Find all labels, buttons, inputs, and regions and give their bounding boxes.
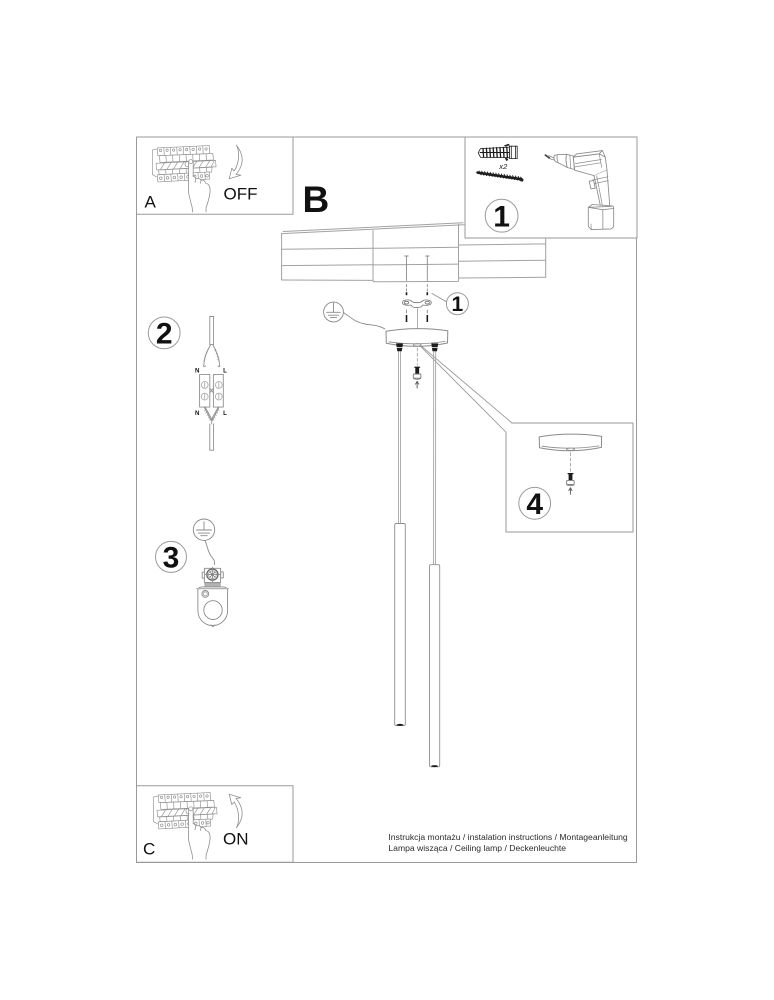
svg-text:B: B: [303, 179, 330, 220]
svg-text:Instrukcja montażu / instalati: Instrukcja montażu / instalation instruc…: [388, 832, 628, 842]
svg-text:L: L: [223, 368, 227, 375]
svg-text:C: C: [143, 839, 155, 858]
svg-text:N: N: [195, 368, 200, 375]
svg-text:3: 3: [163, 542, 180, 575]
svg-text:L: L: [223, 410, 227, 417]
svg-text:N: N: [195, 410, 200, 417]
svg-text:1: 1: [493, 201, 510, 234]
svg-text:1: 1: [452, 293, 464, 316]
svg-text:OFF: OFF: [224, 184, 258, 203]
svg-text:A: A: [145, 193, 157, 212]
svg-text:Lampa wisząca / Ceiling lamp /: Lampa wisząca / Ceiling lamp / Deckenleu…: [388, 843, 566, 853]
svg-text:2: 2: [156, 318, 173, 351]
svg-text:x2: x2: [498, 162, 508, 171]
svg-text:4: 4: [526, 488, 543, 521]
svg-text:ON: ON: [223, 829, 249, 848]
